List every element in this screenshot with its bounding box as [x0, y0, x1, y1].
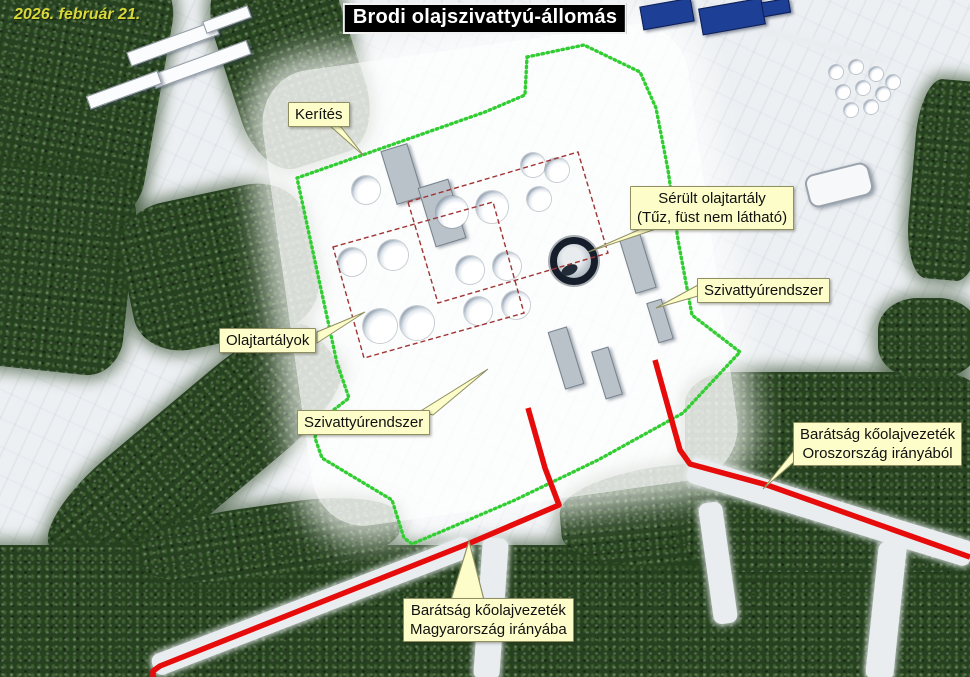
- damaged-tank-label-line2: (Tűz, füst nem látható): [637, 208, 787, 227]
- damaged-tank-label: Sérült olajtartály (Tűz, füst nem láthat…: [630, 186, 794, 230]
- pipeline-from-russia-label-line1: Barátság kőolajvezeték: [800, 425, 955, 444]
- pipeline-to-hungary-label: Barátság kőolajvezeték Magyarország irán…: [403, 598, 574, 642]
- annotated-satellite-image: Kerítés Sérült olajtartály (Tűz, füst ne…: [0, 0, 970, 677]
- pipeline-from-russia-label: Barátság kőolajvezeték Oroszország irány…: [793, 422, 962, 466]
- pipeline-to-hungary-label-line2: Magyarország irányába: [410, 620, 567, 639]
- damaged-tank-label-line1: Sérült olajtartály: [637, 189, 787, 208]
- pipeline-from-russia-label-line2: Oroszország irányából: [800, 444, 955, 463]
- pipeline-russia-label-leader: [763, 449, 795, 489]
- pump-system-left-label: Szivattyúrendszer: [297, 410, 430, 435]
- page-title: Brodi olajszivattyú-állomás: [343, 3, 627, 34]
- pump-system-left-label-leader: [419, 369, 488, 415]
- fence-label: Kerítés: [288, 102, 350, 127]
- annotation-overlay: [0, 0, 970, 677]
- pipeline-to-hungary-label-line1: Barátság kőolajvezeték: [410, 601, 567, 620]
- oil-tanks-label: Olajtartályok: [219, 328, 316, 353]
- fence-label-leader: [329, 125, 364, 156]
- pump-system-right-label: Szivattyúrendszer: [697, 278, 830, 303]
- damaged-tank-label-leader: [588, 228, 659, 252]
- tank-farm-outline-upper: [408, 152, 608, 303]
- image-date: 2026. február 21.: [14, 6, 140, 24]
- fence-boundary-line: [297, 45, 740, 544]
- tank-farm-outline-lower: [333, 202, 524, 358]
- pump-system-right-label-leader: [656, 285, 698, 308]
